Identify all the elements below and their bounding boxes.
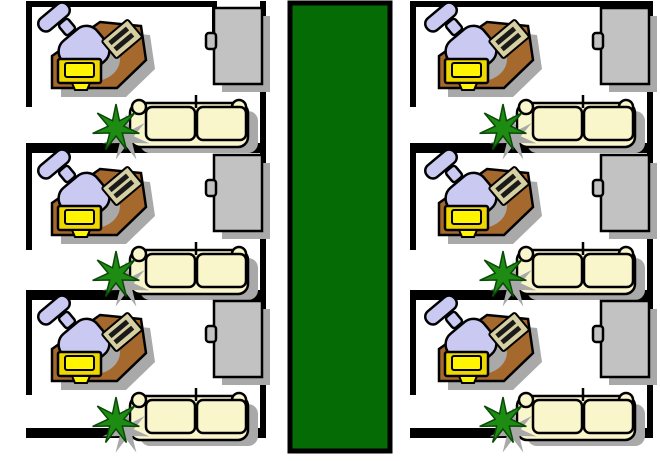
couch-cushion-left xyxy=(146,254,195,287)
monitor-screen xyxy=(65,63,94,77)
floor-plan-canvas xyxy=(0,0,660,461)
cabinet-handle xyxy=(593,180,603,196)
monitor-base xyxy=(72,376,90,383)
monitor-screen xyxy=(65,356,94,370)
couch-cushion-right xyxy=(584,107,633,140)
corridor-carpet xyxy=(290,3,390,451)
wall-left-outer-3 xyxy=(26,300,32,395)
wall-left-outer-1 xyxy=(26,1,32,107)
cabinet-handle xyxy=(206,326,216,342)
couch-cushion-left xyxy=(146,107,195,140)
filing-cabinet xyxy=(214,155,262,231)
wall-right-corridor-1 xyxy=(410,1,416,107)
couch-cushion-left xyxy=(533,254,582,287)
couch-cushion-right xyxy=(197,254,246,287)
monitor-base xyxy=(459,230,477,237)
couch-arm-left xyxy=(132,100,146,114)
floor-plan xyxy=(0,0,660,461)
cabinet-handle xyxy=(206,180,216,196)
wall-left-outer-2 xyxy=(26,153,32,250)
couch-cushion-right xyxy=(584,254,633,287)
couch-arm-left xyxy=(132,393,146,407)
couch-cushion-left xyxy=(533,400,582,433)
couch-cushion-left xyxy=(533,107,582,140)
monitor-base xyxy=(459,83,477,90)
monitor-screen xyxy=(452,210,481,224)
filing-cabinet xyxy=(214,301,262,377)
couch xyxy=(517,95,635,147)
filing-cabinet xyxy=(601,155,649,231)
couch-cushion-left xyxy=(146,400,195,433)
monitor-screen xyxy=(452,356,481,370)
monitor-screen xyxy=(452,63,481,77)
monitor-base xyxy=(72,83,90,90)
couch-arm-left xyxy=(519,100,533,114)
monitor-base xyxy=(72,230,90,237)
wall-right-corridor-2 xyxy=(410,153,416,250)
wall-right-corridor-3 xyxy=(410,300,416,395)
filing-cabinet xyxy=(601,301,649,377)
couch-arm-left xyxy=(519,247,533,261)
cabinet-handle xyxy=(593,33,603,49)
couch-cushion-right xyxy=(197,107,246,140)
couch-arm-left xyxy=(519,393,533,407)
couch-arm-left xyxy=(132,247,146,261)
couch xyxy=(517,388,635,440)
couch-cushion-right xyxy=(584,400,633,433)
couch xyxy=(130,95,248,147)
filing-cabinet xyxy=(214,8,262,84)
couch xyxy=(130,388,248,440)
cabinet-handle xyxy=(593,326,603,342)
cabinet-handle xyxy=(206,33,216,49)
couch-cushion-right xyxy=(197,400,246,433)
monitor-screen xyxy=(65,210,94,224)
couch xyxy=(517,242,635,294)
couch xyxy=(130,242,248,294)
monitor-base xyxy=(459,376,477,383)
filing-cabinet xyxy=(601,8,649,84)
